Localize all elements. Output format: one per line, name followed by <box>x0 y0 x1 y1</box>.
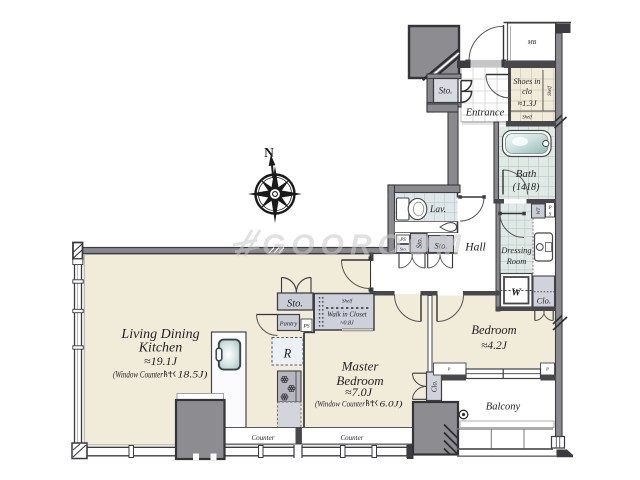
svg-text:Bedroom: Bedroom <box>471 323 516 337</box>
svg-text:Room: Room <box>506 256 527 266</box>
svg-text:Walk in Closet: Walk in Closet <box>327 312 368 319</box>
svg-text:Shelf: Shelf <box>342 300 353 305</box>
svg-text:(Window Counter: (Window Counter <box>315 399 365 409</box>
svg-text:Shelf: Shelf <box>522 116 532 121</box>
svg-text:P: P <box>447 367 451 372</box>
svg-text:MB: MB <box>527 40 537 46</box>
svg-text:clo: clo <box>522 87 532 96</box>
svg-text:Dressing: Dressing <box>500 245 531 255</box>
svg-text:P: P <box>545 367 549 372</box>
svg-text:Hall: Hall <box>464 242 485 254</box>
svg-text:Clo.: Clo. <box>431 380 439 392</box>
svg-text:≈7.0J: ≈7.0J <box>345 385 373 399</box>
svg-text:Pantry: Pantry <box>279 321 298 328</box>
svg-text:Shoes in: Shoes in <box>514 77 541 86</box>
svg-text:Bath: Bath <box>516 168 537 180</box>
svg-text:Clo.: Clo. <box>537 296 551 306</box>
svg-text:Counter: Counter <box>252 434 275 442</box>
svg-text:(Window Counter: (Window Counter <box>113 370 163 380</box>
svg-text:W: W <box>511 287 522 299</box>
svg-text:Sto.: Sto. <box>439 86 453 96</box>
svg-text:PS: PS <box>302 324 309 330</box>
svg-text:≈1.3J: ≈1.3J <box>517 98 537 108</box>
svg-text:Entrance: Entrance <box>465 108 505 119</box>
svg-text:≈0.8J: ≈0.8J <box>340 321 354 327</box>
svg-text:R: R <box>283 347 292 361</box>
svg-text:18.5J): 18.5J) <box>178 370 208 380</box>
svg-text:6.0J): 6.0J) <box>380 399 403 409</box>
svg-text:WT: WT <box>537 207 542 214</box>
svg-text:Shelf: Shelf <box>548 86 553 96</box>
svg-text:≈19.1J: ≈19.1J <box>144 354 178 368</box>
svg-text:Master: Master <box>341 359 380 374</box>
svg-text:Sto.: Sto. <box>287 298 303 309</box>
svg-text:N: N <box>264 145 274 160</box>
svg-text:Counter: Counter <box>341 434 364 442</box>
svg-text:Lav.: Lav. <box>429 205 446 215</box>
svg-text:P: P <box>547 206 551 211</box>
svg-text:Balcony: Balcony <box>486 402 521 413</box>
svg-text:≈4.2J: ≈4.2J <box>481 340 508 352</box>
